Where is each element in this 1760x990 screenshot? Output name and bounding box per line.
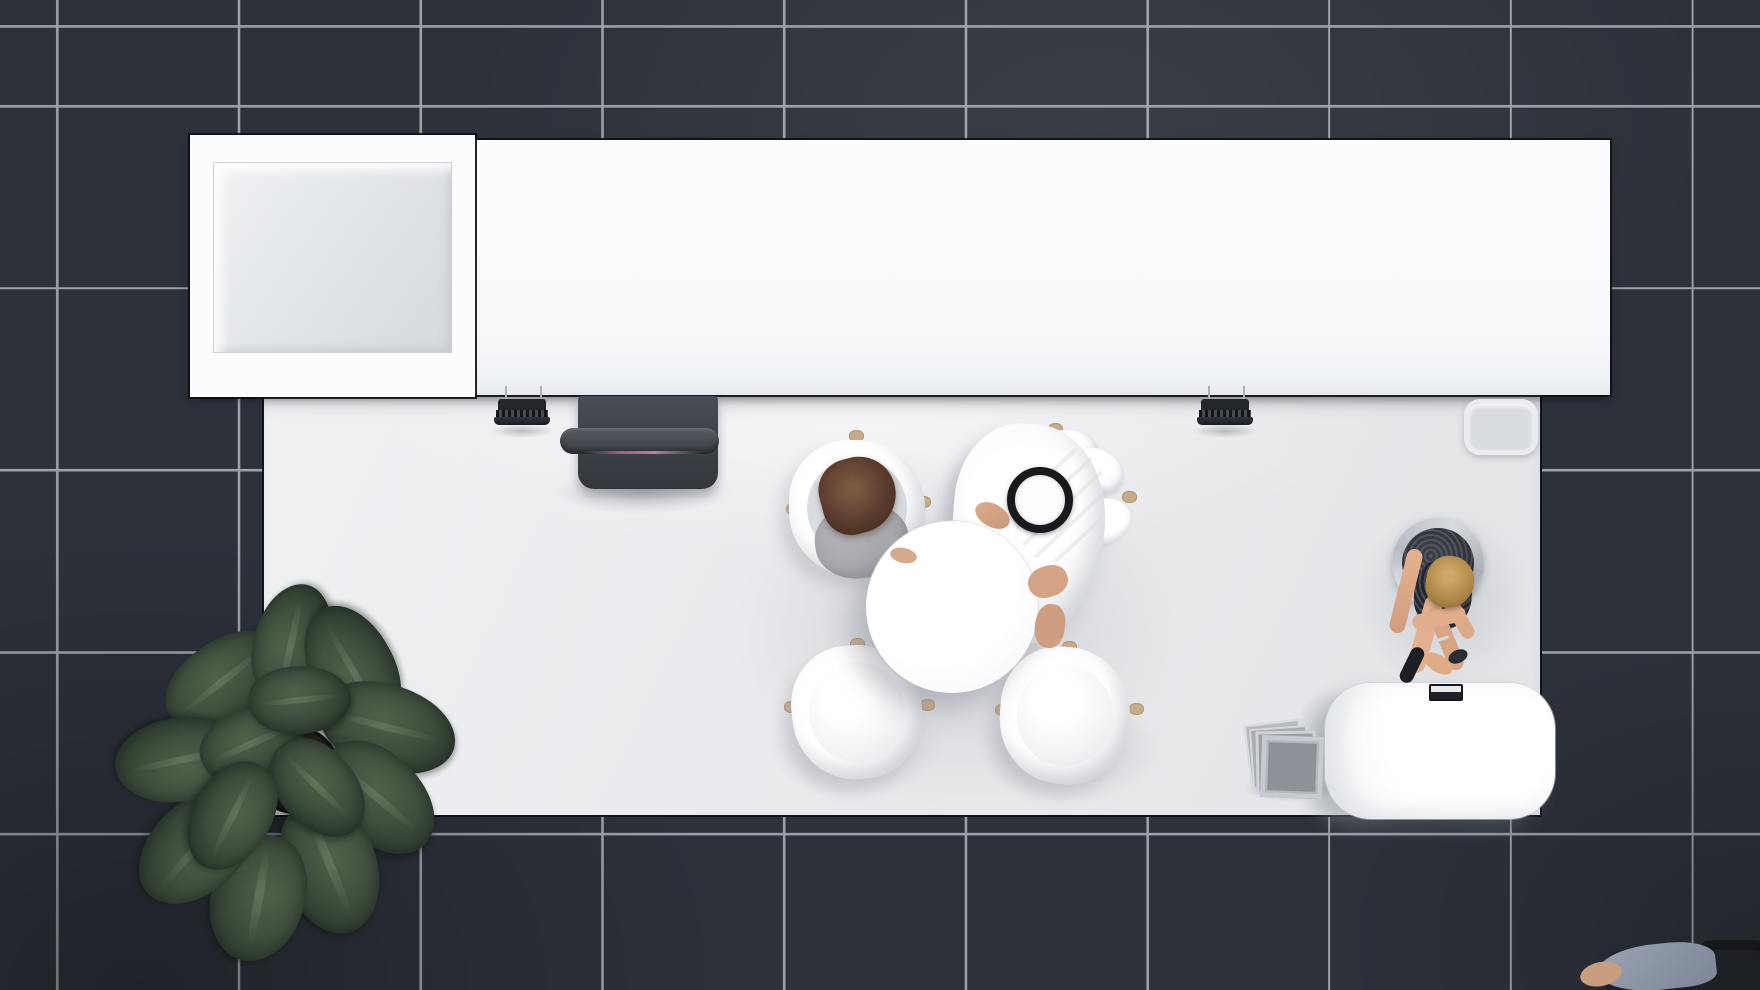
spotlight-shadow — [490, 424, 554, 438]
spotlight-base — [494, 417, 550, 425]
desk-tray — [1429, 684, 1463, 701]
scene-root — [0, 0, 1760, 990]
visitor-b-headband — [1007, 467, 1073, 533]
side-stool — [1464, 399, 1538, 455]
brochure-panel — [1260, 735, 1324, 799]
chair-leg — [1122, 491, 1137, 503]
round-table — [866, 521, 1038, 693]
spotlight-right — [1197, 386, 1253, 426]
media-screen-accent-light — [584, 451, 702, 454]
chair-leg — [1129, 703, 1144, 715]
storage-room-interior — [213, 162, 452, 353]
spotlight-left — [494, 386, 550, 426]
spotlight-shadow — [1193, 424, 1257, 438]
chair-leg — [920, 699, 935, 711]
spotlight-base — [1197, 417, 1253, 425]
reception-desk — [1325, 683, 1555, 819]
